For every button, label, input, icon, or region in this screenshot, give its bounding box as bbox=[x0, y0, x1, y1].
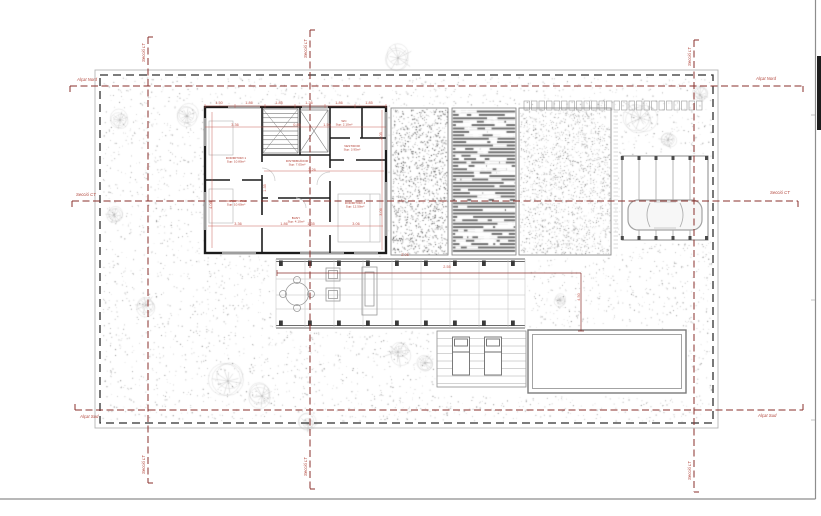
pool bbox=[528, 330, 686, 393]
room-area-label: Sup: 10.80m² bbox=[227, 160, 246, 164]
dimension-label: 2.55 bbox=[443, 265, 450, 269]
dimension-label: 1.85 bbox=[365, 101, 372, 105]
dimension-label: 2.05 bbox=[379, 132, 383, 139]
ground-panels bbox=[391, 108, 611, 255]
sheet-border bbox=[0, 0, 816, 499]
dimension-label: 1.35 bbox=[307, 222, 314, 226]
room-area-label: Sup: 4.10m² bbox=[288, 220, 305, 224]
dimension-label: 1.50 bbox=[323, 123, 330, 127]
drawing-canvas: Alçat Nord Alçat Nord Alçat Sud Alçat Su… bbox=[0, 0, 821, 516]
dimension-label: 1.35 bbox=[263, 184, 267, 191]
section-label-v2-top: Secció LT bbox=[303, 39, 308, 58]
sun-lounger-icon bbox=[453, 337, 470, 375]
dimension-label: 0.85 bbox=[293, 123, 300, 127]
scrollbar-thumb[interactable] bbox=[817, 56, 821, 130]
elevation-line-north bbox=[70, 86, 803, 92]
section-label-v3-bottom: Secció LT bbox=[687, 461, 692, 480]
room-area-label: Sup: 10.60m² bbox=[227, 203, 246, 207]
section-label-v3-top: Secció LT bbox=[687, 47, 692, 66]
dimension-label: 1.85 bbox=[275, 101, 282, 105]
elevation-label-south-left: Alçat Sud bbox=[79, 414, 99, 419]
room-area-label: Sup: 2.10m² bbox=[336, 123, 353, 127]
dimension-label: 1.36 bbox=[305, 101, 312, 105]
hedge-band bbox=[524, 101, 702, 110]
section-label-mid-right: Secció CT bbox=[770, 190, 790, 195]
section-label-mid-left: Secció CT bbox=[76, 192, 96, 197]
room-area-label: Sup: 12.50m² bbox=[346, 205, 365, 209]
section-line-vertical-2 bbox=[310, 30, 315, 489]
sun-deck bbox=[437, 331, 526, 387]
dimension-label: 4.06 bbox=[209, 201, 213, 208]
car-top-view-icon bbox=[628, 200, 702, 230]
room-area-label: Sup: 7.05m² bbox=[289, 163, 306, 167]
section-line-vertical-1 bbox=[148, 37, 153, 483]
dimension-label: 3.06 bbox=[379, 208, 383, 215]
terrace-furniture bbox=[280, 267, 378, 315]
elevation-label-north-right: Alçat Nord bbox=[755, 76, 777, 81]
dimension-label: 1.50 bbox=[215, 101, 222, 105]
dimension-label: 3.26 bbox=[308, 168, 315, 172]
sofa-icon bbox=[362, 267, 377, 315]
wood-deck-panel bbox=[452, 108, 516, 255]
carport bbox=[621, 156, 708, 240]
plan-svg: Alçat Nord Alçat Nord Alçat Sud Alçat Su… bbox=[0, 0, 821, 516]
terrace-pergola bbox=[276, 259, 525, 328]
room-area-label: Sup: 3.95m² bbox=[344, 148, 361, 152]
dimension-label: 3.36 bbox=[234, 222, 241, 226]
gravel-panel bbox=[391, 108, 448, 255]
sun-lounger-icon bbox=[485, 337, 502, 375]
dimension-label: 4.50 bbox=[577, 293, 581, 300]
section-label-v1-bottom: Secció LT bbox=[141, 455, 146, 474]
section-label-v1-top: Secció LT bbox=[141, 43, 146, 62]
edge-hatch-ticks bbox=[614, 112, 619, 248]
dimension-label: 1.86 bbox=[245, 101, 252, 105]
elevation-label-south-right: Alçat Sud bbox=[757, 413, 777, 418]
elevation-label-north-left: Alçat Nord bbox=[76, 77, 98, 82]
lawn-panel bbox=[519, 108, 611, 255]
section-label-v2-bottom: Secció LT bbox=[303, 457, 308, 476]
dimension-label: 3.06 bbox=[352, 222, 359, 226]
dimension-label: 1.86 bbox=[335, 101, 342, 105]
dimension-label: 2.05 bbox=[401, 253, 408, 257]
dimension-label: 3.36 bbox=[231, 123, 238, 127]
